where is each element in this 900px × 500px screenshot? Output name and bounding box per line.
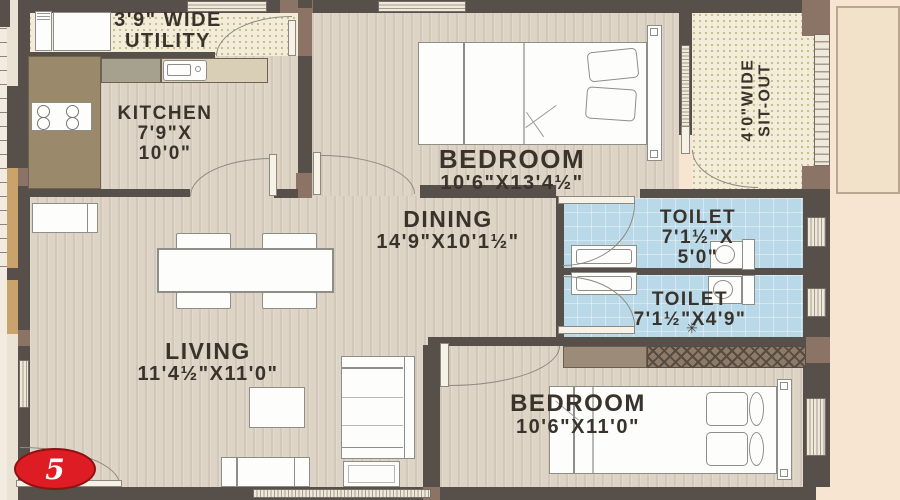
toilet2-label-dim: 7'1½"X4'9" bbox=[634, 310, 747, 330]
living-label-name: LIVING bbox=[137, 340, 278, 364]
burner bbox=[37, 117, 50, 130]
wall-accent bbox=[803, 337, 830, 363]
kitchen-label-name: KITCHEN bbox=[118, 104, 213, 124]
toilet1-label-name: TOILET bbox=[660, 208, 736, 228]
washing-machine-panel bbox=[37, 13, 50, 22]
pillow bbox=[706, 432, 748, 466]
dining-table bbox=[157, 248, 334, 293]
living-left-window bbox=[19, 360, 29, 408]
tv-unit-line bbox=[294, 458, 296, 486]
sofa-back-line bbox=[404, 357, 406, 458]
footstool bbox=[343, 461, 400, 487]
toilet2-label: TOILET 7'1½"X4'9" bbox=[634, 290, 747, 330]
dining-chair bbox=[262, 292, 317, 309]
wardrobe bbox=[647, 346, 806, 368]
toilet2-ventilator bbox=[807, 288, 826, 317]
utility-label-line2: UTILITY bbox=[114, 31, 222, 52]
wall-toilet1-top bbox=[640, 189, 830, 198]
living-sofa-main bbox=[341, 356, 415, 459]
wall-accent bbox=[296, 173, 312, 198]
dining-chair bbox=[176, 292, 231, 309]
terrace bbox=[836, 6, 900, 194]
tv-unit bbox=[221, 457, 310, 487]
sofa-arm-line bbox=[342, 367, 403, 369]
kitchen-label-dim1: 7'9"X bbox=[118, 124, 213, 144]
sofa-seat-line bbox=[342, 425, 403, 426]
wall-kitchen-dining bbox=[28, 189, 190, 197]
bolster bbox=[749, 432, 764, 466]
sitout-door-leaf bbox=[681, 126, 690, 154]
kitchen-counter-top bbox=[101, 58, 161, 83]
bedroom1-sitout-glass bbox=[681, 45, 690, 130]
burner bbox=[66, 117, 79, 130]
bedroom1-label-dim: 10'6"X13'4½" bbox=[439, 173, 585, 194]
bedroom2-window bbox=[806, 398, 826, 456]
sofa-seat-line bbox=[342, 397, 403, 398]
neighbour-door-panel bbox=[7, 280, 18, 334]
mattress-line bbox=[463, 43, 465, 144]
bedroom1-window bbox=[378, 1, 466, 12]
sitout-label-line1: 4'0"WIDE bbox=[740, 59, 757, 142]
toilet1-door-leaf bbox=[558, 196, 635, 204]
dimension-ticks bbox=[0, 0, 7, 280]
living-label: LIVING 11'4½"X11'0" bbox=[137, 340, 278, 385]
bedroom1-label-name: BEDROOM bbox=[439, 146, 585, 173]
sink-basin bbox=[167, 64, 191, 76]
bedroom2-label: BEDROOM 10'6"X11'0" bbox=[510, 392, 646, 438]
dressing-ledge bbox=[563, 346, 647, 368]
living-bottom-window bbox=[253, 489, 431, 498]
toilet2-label-name: TOILET bbox=[634, 290, 747, 310]
kitchen-label-dim2: 10'0" bbox=[118, 144, 213, 164]
floor-plan: ✳ 3'9" WID bbox=[0, 0, 900, 500]
toilet1-label: TOILET 7'1½"X 5'0" bbox=[660, 208, 736, 267]
bolster bbox=[749, 392, 764, 426]
dining-label-dim: 14'9"X10'1½" bbox=[376, 232, 519, 253]
living-sofa-small bbox=[32, 203, 98, 233]
coffee-table bbox=[249, 387, 305, 428]
sitout-label-line2: SIT-OUT bbox=[757, 59, 774, 142]
dining-label: DINING 14'9"X10'1½" bbox=[376, 208, 519, 253]
wall-living-bedroom2 bbox=[423, 345, 440, 487]
utility-counter bbox=[53, 12, 111, 51]
sitout-corner-post bbox=[802, 0, 830, 36]
headboard-post bbox=[650, 28, 658, 36]
sofa-arm-line bbox=[342, 447, 403, 449]
utility-label: 3'9" WIDE UTILITY bbox=[114, 10, 222, 52]
utility-door-leaf bbox=[288, 20, 296, 56]
neighbour-wall-segment bbox=[7, 86, 18, 170]
bedroom2-label-name: BEDROOM bbox=[510, 392, 646, 417]
toilet1-label-dim2: 5'0" bbox=[660, 248, 736, 268]
headboard-post bbox=[780, 382, 788, 390]
bedroom2-label-dim: 10'6"X11'0" bbox=[510, 417, 646, 438]
kitchen-door-leaf bbox=[269, 154, 277, 196]
bedroom2-door-leaf bbox=[440, 343, 449, 387]
sofa-arm-line bbox=[87, 204, 89, 232]
unit-number-badge: 5 bbox=[14, 448, 96, 490]
unit-number: 5 bbox=[45, 453, 64, 486]
bedroom1-headboard bbox=[647, 25, 662, 161]
neighbour-wall-segment bbox=[0, 0, 10, 27]
mattress-line bbox=[523, 43, 525, 144]
kitchen-label: KITCHEN 7'9"X 10'0" bbox=[118, 104, 213, 163]
headboard-post bbox=[650, 150, 658, 158]
stool-inner bbox=[348, 465, 395, 483]
bedroom1-label: BEDROOM 10'6"X13'4½" bbox=[439, 146, 585, 194]
toilet1-wc-tank bbox=[742, 239, 755, 270]
living-label-dim: 11'4½"X11'0" bbox=[137, 364, 278, 385]
tv-unit-line bbox=[236, 458, 238, 486]
kitchen-sink bbox=[163, 60, 207, 81]
neighbour-wall-segment bbox=[7, 268, 18, 280]
toilet1-label-dim1: 7'1½"X bbox=[660, 228, 736, 248]
washing-machine bbox=[35, 11, 52, 51]
pillow bbox=[706, 392, 748, 426]
sitout-label: 4'0"WIDE SIT-OUT bbox=[740, 59, 773, 142]
pillow bbox=[587, 47, 640, 82]
bedroom2-headboard bbox=[777, 379, 792, 480]
wall-accent bbox=[18, 330, 30, 346]
stove bbox=[31, 102, 92, 131]
headboard-post bbox=[780, 469, 788, 477]
sink-tap bbox=[195, 66, 201, 72]
toilet1-ventilator bbox=[807, 217, 826, 247]
wall-accent bbox=[298, 8, 312, 56]
dining-label-name: DINING bbox=[376, 208, 519, 232]
wall-stub bbox=[274, 189, 298, 198]
pillow bbox=[585, 86, 637, 121]
wall-bedroom2-top bbox=[428, 337, 806, 346]
sitout-railing bbox=[814, 34, 830, 166]
utility-label-line1: 3'9" WIDE bbox=[114, 10, 222, 31]
toilet2-door-leaf bbox=[558, 326, 635, 334]
neighbour-door-panel bbox=[7, 168, 18, 270]
bedroom1-door-leaf bbox=[313, 152, 321, 195]
